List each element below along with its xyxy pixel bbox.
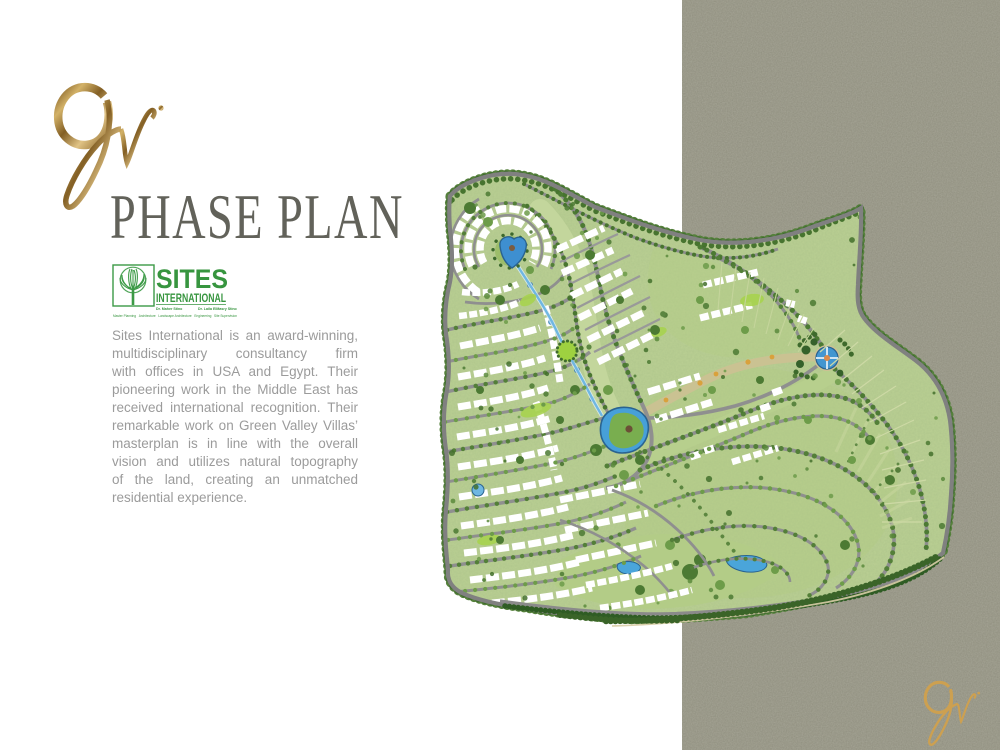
svg-text:SITES: SITES bbox=[156, 264, 228, 294]
svg-text:Dr. Laila ElMasry Stino: Dr. Laila ElMasry Stino bbox=[198, 307, 238, 311]
svg-text:INTERNATIONAL: INTERNATIONAL bbox=[156, 291, 226, 305]
svg-text:Master Planning Architecture: Master Planning Architecture Landscape A… bbox=[113, 314, 237, 318]
svg-text:Dr. Maher Stino: Dr. Maher Stino bbox=[156, 307, 183, 311]
